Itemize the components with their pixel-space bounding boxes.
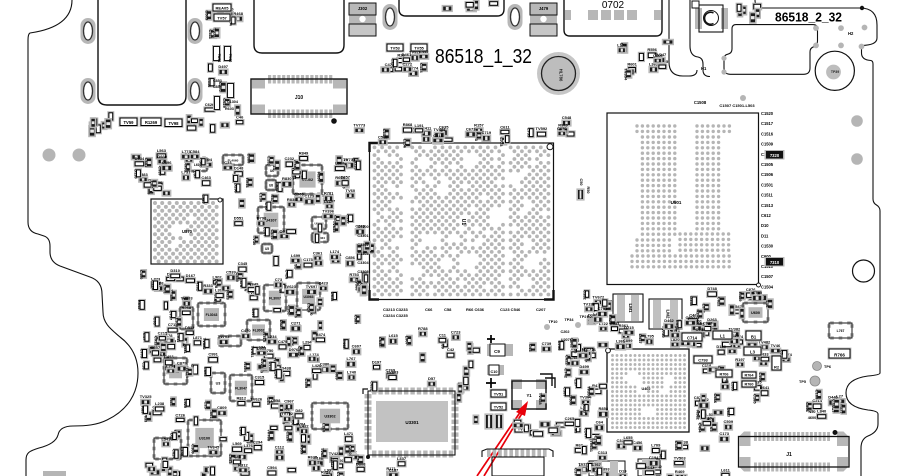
svg-text:D461: D461 — [402, 52, 412, 57]
svg-text:R489: R489 — [738, 292, 743, 302]
svg-text:C309: C309 — [191, 444, 196, 454]
svg-text:C3213 C3233: C3213 C3233 — [383, 307, 408, 312]
svg-text:TV882: TV882 — [202, 338, 207, 351]
svg-text:C587: C587 — [353, 315, 358, 325]
svg-text:C66: C66 — [425, 307, 433, 312]
svg-text:C493: C493 — [164, 354, 174, 359]
svg-text:D58: D58 — [170, 433, 175, 441]
svg-text:D500: D500 — [568, 395, 573, 405]
svg-text:C315: C315 — [255, 375, 265, 380]
svg-text:C17: C17 — [142, 333, 147, 341]
svg-text:R849: R849 — [299, 151, 309, 156]
svg-text:L471: L471 — [344, 431, 354, 436]
svg-text:C181: C181 — [832, 399, 837, 409]
svg-text:L420: L420 — [312, 363, 322, 368]
svg-text:TV52: TV52 — [494, 404, 504, 409]
svg-text:TV46: TV46 — [771, 343, 781, 348]
svg-text:C87: C87 — [150, 181, 155, 189]
svg-text:U3: U3 — [216, 382, 221, 386]
svg-text:TV53: TV53 — [390, 45, 400, 50]
svg-text:U3100: U3100 — [199, 437, 210, 441]
svg-text:C187: C187 — [262, 227, 267, 237]
svg-text:TV623: TV623 — [284, 284, 297, 289]
svg-text:R757: R757 — [321, 470, 331, 475]
svg-text:R127: R127 — [582, 404, 587, 414]
svg-text:REA05: REA05 — [216, 5, 230, 10]
svg-text:L569: L569 — [233, 441, 243, 446]
svg-text:C895: C895 — [203, 367, 208, 377]
svg-text:B1: B1 — [751, 334, 757, 339]
svg-text:R766: R766 — [834, 352, 845, 357]
svg-text:C188: C188 — [814, 390, 819, 400]
svg-text:C874: C874 — [275, 182, 280, 192]
svg-text:C215: C215 — [158, 331, 168, 336]
svg-text:R66 C636: R66 C636 — [466, 307, 485, 312]
svg-text:C93: C93 — [152, 317, 157, 325]
svg-text:R830: R830 — [282, 176, 292, 181]
svg-text:C202: C202 — [560, 330, 569, 334]
svg-text:C822: C822 — [717, 297, 722, 307]
svg-text:C622: C622 — [565, 355, 570, 365]
svg-text:R142: R142 — [645, 465, 655, 470]
svg-text:C399: C399 — [304, 379, 309, 389]
svg-text:C1520: C1520 — [761, 111, 774, 116]
svg-text:TV209: TV209 — [586, 386, 591, 399]
svg-text:C265: C265 — [565, 416, 575, 421]
svg-text:C1513: C1513 — [761, 203, 774, 208]
svg-text:7320: 7320 — [770, 153, 780, 158]
svg-text:C333: C333 — [610, 321, 620, 326]
svg-text:L738: L738 — [180, 447, 185, 457]
svg-text:C445: C445 — [419, 49, 429, 54]
svg-text:C607: C607 — [352, 344, 362, 349]
svg-text:C1507: C1507 — [761, 274, 774, 279]
svg-text:86518_1_32: 86518_1_32 — [435, 46, 532, 68]
svg-text:D715: D715 — [624, 325, 634, 330]
svg-text:R603: R603 — [225, 107, 234, 111]
svg-text:D82: D82 — [295, 408, 303, 413]
svg-text:C470: C470 — [241, 328, 251, 333]
svg-text:D930: D930 — [157, 154, 167, 159]
svg-text:C173: C173 — [303, 257, 313, 262]
svg-text:L37: L37 — [574, 379, 579, 387]
svg-text:TV40: TV40 — [228, 54, 232, 63]
svg-text:C112: C112 — [275, 444, 285, 449]
svg-text:L422: L422 — [300, 423, 310, 428]
svg-text:C376: C376 — [239, 278, 244, 288]
svg-text:L536: L536 — [335, 161, 345, 166]
svg-text:L16: L16 — [765, 300, 770, 308]
svg-text:D197: D197 — [372, 359, 382, 364]
svg-text:C879: C879 — [177, 361, 187, 366]
svg-text:C3303: C3303 — [357, 252, 368, 256]
svg-text:D818: D818 — [330, 292, 335, 302]
svg-text:C714: C714 — [687, 335, 698, 340]
svg-text:D798: D798 — [257, 216, 267, 221]
svg-text:C795: C795 — [598, 306, 608, 311]
svg-text:C361: C361 — [313, 251, 323, 256]
svg-text:R788: R788 — [418, 326, 428, 331]
svg-text:C856: C856 — [345, 255, 355, 260]
svg-text:R834: R834 — [287, 197, 297, 202]
svg-text:D110: D110 — [134, 169, 139, 179]
svg-text:C345: C345 — [238, 261, 248, 266]
svg-text:C509: C509 — [724, 419, 734, 424]
svg-text:C3300: C3300 — [357, 225, 368, 229]
svg-text:L615: L615 — [389, 333, 399, 338]
svg-text:C187: C187 — [389, 467, 399, 472]
svg-text:D462: D462 — [664, 318, 674, 323]
svg-text:C539: C539 — [226, 270, 236, 275]
svg-text:D438: D438 — [281, 365, 291, 370]
svg-text:R715: R715 — [262, 332, 267, 342]
svg-text:TP39: TP39 — [831, 70, 839, 74]
svg-text:TV423: TV423 — [329, 451, 342, 456]
svg-text:D551: D551 — [234, 216, 244, 221]
svg-text:R845: R845 — [137, 300, 142, 310]
svg-text:C594: C594 — [267, 465, 277, 470]
svg-text:R733: R733 — [354, 160, 359, 170]
svg-text:C9: C9 — [494, 349, 500, 354]
svg-text:C767: C767 — [591, 462, 601, 467]
svg-text:L907: L907 — [405, 336, 410, 346]
svg-text:R781: R781 — [324, 190, 334, 195]
svg-text:TV773: TV773 — [353, 123, 366, 128]
svg-text:R868: R868 — [403, 122, 413, 127]
svg-text:R54: R54 — [169, 398, 174, 406]
svg-text:C207: C207 — [390, 59, 395, 69]
svg-text:D808: D808 — [356, 461, 366, 466]
svg-text:C726: C726 — [175, 412, 185, 417]
svg-text:L767: L767 — [837, 329, 845, 333]
svg-text:R197: R197 — [735, 357, 745, 362]
svg-text:L361: L361 — [616, 339, 626, 344]
svg-text:L191: L191 — [414, 123, 424, 128]
svg-text:D324: D324 — [279, 320, 284, 330]
svg-text:R959: R959 — [299, 445, 304, 455]
svg-text:C372: C372 — [675, 320, 680, 330]
svg-text:C1517: C1517 — [761, 121, 774, 126]
svg-text:R141: R141 — [274, 369, 279, 379]
svg-text:L130: L130 — [259, 193, 264, 203]
svg-text:C232: C232 — [285, 156, 295, 161]
svg-text:C152: C152 — [582, 290, 587, 300]
svg-text:TV60: TV60 — [346, 188, 356, 193]
svg-text:C1516: C1516 — [761, 131, 774, 136]
svg-text:C1507 C1501-L503: C1507 C1501-L503 — [719, 103, 755, 108]
svg-text:R858: R858 — [599, 406, 609, 411]
svg-text:C809: C809 — [217, 405, 227, 410]
svg-text:C490: C490 — [139, 270, 144, 280]
svg-text:D662: D662 — [570, 338, 575, 348]
svg-text:C423: C423 — [318, 281, 328, 286]
svg-text:C1304: C1304 — [227, 100, 239, 104]
svg-text:L238: L238 — [155, 401, 165, 406]
svg-text:R946: R946 — [245, 178, 250, 188]
svg-text:R760: R760 — [744, 382, 753, 386]
svg-text:D310: D310 — [170, 268, 180, 273]
svg-text:C456: C456 — [633, 440, 643, 445]
svg-text:C612: C612 — [761, 213, 772, 218]
svg-text:H1: H1 — [701, 66, 707, 71]
svg-text:J302: J302 — [358, 6, 368, 11]
svg-text:R469: R469 — [675, 469, 685, 474]
svg-text:C10: C10 — [491, 370, 498, 374]
svg-text:R1269: R1269 — [145, 120, 158, 125]
svg-text:C853: C853 — [213, 79, 222, 83]
svg-text:TV30: TV30 — [252, 236, 257, 246]
svg-text:C542: C542 — [297, 346, 302, 356]
svg-text:D167: D167 — [186, 273, 196, 278]
svg-text:R601: R601 — [627, 62, 637, 67]
svg-text:L108: L108 — [174, 318, 179, 328]
svg-text:C116: C116 — [207, 78, 212, 88]
svg-text:L437: L437 — [397, 456, 407, 461]
svg-text:D10: D10 — [761, 223, 769, 228]
svg-text:C185: C185 — [753, 394, 758, 404]
svg-text:C426: C426 — [285, 270, 290, 280]
svg-text:C681: C681 — [144, 158, 149, 168]
svg-text:L524: L524 — [307, 303, 312, 313]
svg-text:C252: C252 — [287, 305, 292, 315]
svg-text:TV59: TV59 — [123, 120, 134, 125]
svg-text:C728: C728 — [260, 359, 265, 369]
svg-text:D532: D532 — [185, 325, 195, 330]
svg-text:C73: C73 — [275, 277, 283, 282]
svg-text:C463: C463 — [201, 175, 211, 180]
svg-text:U600: U600 — [751, 311, 760, 315]
svg-text:FL3047: FL3047 — [235, 387, 247, 391]
svg-text:C557: C557 — [151, 345, 161, 350]
svg-text:C448: C448 — [595, 467, 600, 476]
svg-text:C1506: C1506 — [761, 172, 774, 177]
svg-text:C11: C11 — [439, 332, 447, 337]
svg-text:C977: C977 — [251, 308, 256, 318]
svg-text:TV684: TV684 — [320, 448, 325, 461]
svg-text:C611: C611 — [500, 124, 510, 129]
svg-text:U501: U501 — [671, 200, 682, 205]
svg-text:C723: C723 — [451, 329, 461, 334]
svg-text:R424: R424 — [185, 368, 190, 378]
svg-text:L298: L298 — [166, 363, 176, 368]
svg-text:TV441: TV441 — [250, 346, 255, 359]
svg-text:J479: J479 — [539, 6, 549, 11]
svg-text:L920: L920 — [183, 399, 188, 409]
svg-text:C103: C103 — [674, 441, 679, 451]
svg-text:H2: H2 — [848, 31, 854, 36]
svg-text:R568: R568 — [182, 305, 192, 310]
svg-text:L840: L840 — [817, 409, 827, 414]
svg-text:C25: C25 — [204, 402, 209, 410]
svg-text:D19: D19 — [619, 469, 627, 474]
svg-text:TV792: TV792 — [281, 411, 294, 416]
svg-text:C3305: C3305 — [357, 270, 368, 274]
svg-text:D380: D380 — [246, 154, 251, 164]
svg-text:D748: D748 — [707, 286, 717, 291]
svg-text:L655: L655 — [623, 435, 633, 440]
svg-text:C865: C865 — [653, 53, 663, 58]
svg-text:C134: C134 — [419, 63, 424, 73]
svg-text:L795: L795 — [645, 334, 655, 339]
svg-text:C1508: C1508 — [694, 100, 707, 105]
svg-text:C271: C271 — [291, 321, 301, 326]
svg-text:R2: R2 — [774, 364, 780, 369]
svg-text:TV383: TV383 — [181, 296, 194, 301]
svg-text:R69: R69 — [140, 406, 145, 414]
svg-text:TV345: TV345 — [207, 445, 220, 450]
svg-text:TV626: TV626 — [250, 396, 263, 401]
svg-text:C757: C757 — [169, 311, 174, 321]
svg-text:L356: L356 — [403, 139, 408, 149]
svg-text:L234: L234 — [267, 334, 277, 339]
svg-text:C26: C26 — [142, 362, 147, 370]
svg-text:C790: C790 — [557, 341, 562, 351]
svg-text:L933: L933 — [239, 427, 244, 437]
svg-text:C173: C173 — [719, 431, 729, 436]
svg-text:C194: C194 — [649, 455, 659, 460]
svg-text:C479: C479 — [278, 339, 288, 344]
svg-text:C282: C282 — [336, 472, 341, 476]
svg-text:D417: D417 — [638, 334, 643, 344]
svg-text:C324: C324 — [150, 280, 155, 290]
svg-text:C34: C34 — [224, 160, 232, 165]
svg-text:TV325: TV325 — [140, 394, 153, 399]
svg-text:D934: D934 — [135, 156, 145, 161]
svg-text:C58: C58 — [444, 307, 452, 312]
svg-text:N50: N50 — [809, 410, 816, 414]
svg-text:C280: C280 — [348, 445, 353, 455]
svg-text:C97: C97 — [193, 171, 198, 179]
svg-text:TP6: TP6 — [824, 365, 831, 369]
svg-text:L535: L535 — [730, 382, 735, 392]
svg-text:U402: U402 — [641, 387, 650, 391]
svg-text:C558: C558 — [271, 398, 281, 403]
svg-text:C123: C123 — [305, 194, 315, 199]
svg-text:C3301: C3301 — [357, 234, 368, 238]
svg-text:C824: C824 — [172, 449, 177, 459]
svg-text:C850: C850 — [213, 85, 222, 89]
svg-text:TV484: TV484 — [434, 127, 447, 132]
svg-text:C719: C719 — [482, 130, 492, 135]
svg-text:TP34: TP34 — [564, 318, 574, 322]
svg-text:D57: D57 — [428, 376, 436, 381]
svg-text:C548: C548 — [562, 115, 572, 120]
svg-text:C867: C867 — [201, 194, 206, 204]
svg-text:D11: D11 — [761, 233, 769, 238]
svg-text:R557: R557 — [316, 172, 321, 182]
svg-text:C638: C638 — [378, 337, 383, 347]
svg-text:C23: C23 — [233, 454, 241, 459]
svg-text:TA51: TA51 — [217, 54, 221, 63]
svg-text:C670: C670 — [557, 126, 567, 131]
svg-text:L723: L723 — [499, 137, 504, 147]
svg-text:L172: L172 — [617, 42, 627, 47]
svg-text:FL3043: FL3043 — [206, 313, 218, 317]
svg-text:TV190: TV190 — [583, 302, 596, 307]
svg-text:R812: R812 — [237, 396, 247, 401]
svg-text:7310: 7310 — [770, 260, 780, 265]
svg-text:J1: J1 — [786, 452, 792, 458]
svg-text:R157: R157 — [474, 123, 484, 128]
svg-text:D505: D505 — [204, 11, 209, 21]
svg-text:TV683: TV683 — [387, 369, 400, 374]
svg-text:L709: L709 — [651, 443, 661, 448]
svg-text:TV354: TV354 — [623, 68, 628, 81]
svg-text:C666: C666 — [713, 394, 718, 404]
svg-text:U870: U870 — [182, 229, 193, 234]
svg-text:U1: U1 — [460, 219, 466, 226]
svg-text:C207: C207 — [536, 307, 546, 312]
svg-text:C294: C294 — [253, 440, 263, 445]
svg-text:R923: R923 — [225, 290, 230, 300]
svg-text:TV51: TV51 — [494, 391, 504, 396]
svg-text:C1511: C1511 — [761, 193, 774, 198]
svg-text:C967: C967 — [284, 399, 294, 404]
svg-text:L611: L611 — [721, 467, 731, 472]
svg-text:L153: L153 — [267, 156, 272, 166]
svg-text:C387: C387 — [563, 387, 568, 397]
svg-text:C1501: C1501 — [761, 182, 774, 187]
svg-text:R562: R562 — [696, 410, 701, 420]
svg-text:D180: D180 — [716, 344, 726, 349]
svg-text:C156: C156 — [586, 463, 591, 473]
svg-text:C632: C632 — [370, 381, 375, 391]
svg-text:FL3007: FL3007 — [269, 297, 281, 301]
svg-text:R706: R706 — [719, 372, 728, 376]
svg-text:TV702: TV702 — [218, 334, 231, 339]
svg-text:C742: C742 — [563, 368, 568, 378]
svg-text:L174: L174 — [330, 249, 340, 254]
svg-text:L699: L699 — [291, 253, 301, 258]
svg-text:L35: L35 — [722, 379, 730, 384]
svg-text:C775: C775 — [752, 290, 762, 295]
svg-text:D296: D296 — [234, 183, 239, 193]
svg-text:TV631: TV631 — [589, 440, 594, 453]
svg-text:L1: L1 — [720, 333, 726, 338]
svg-text:TV592: TV592 — [536, 126, 549, 131]
svg-text:TV207: TV207 — [324, 199, 337, 204]
svg-text:U3301: U3301 — [405, 420, 419, 425]
svg-text:R468: R468 — [233, 11, 243, 16]
svg-text:C1509: C1509 — [761, 142, 774, 147]
svg-text:C657: C657 — [340, 175, 350, 180]
svg-text:C123 C546: C123 C546 — [500, 307, 521, 312]
svg-text:C147: C147 — [583, 428, 588, 438]
svg-text:0702: 0702 — [602, 0, 625, 11]
svg-text:U3302: U3302 — [324, 415, 335, 419]
svg-text:TV697: TV697 — [306, 284, 319, 289]
svg-text:C794: C794 — [594, 436, 599, 446]
svg-text:L740: L740 — [347, 369, 357, 374]
svg-text:C512: C512 — [378, 134, 388, 139]
svg-text:R474: R474 — [316, 332, 326, 337]
svg-text:J10: J10 — [295, 95, 304, 101]
svg-text:R641: R641 — [760, 385, 770, 390]
svg-text:C991: C991 — [208, 352, 218, 357]
svg-text:L563: L563 — [157, 148, 167, 153]
svg-text:C1504: C1504 — [761, 284, 774, 289]
svg-text:TV98: TV98 — [168, 121, 179, 126]
svg-text:TP2: TP2 — [580, 315, 587, 319]
svg-text:L3: L3 — [750, 349, 756, 354]
svg-text:TP5: TP5 — [799, 380, 806, 384]
svg-text:C659: C659 — [257, 345, 267, 350]
svg-text:C1505: C1505 — [761, 162, 774, 167]
svg-text:U4107: U4107 — [265, 219, 276, 223]
svg-text:TP10: TP10 — [548, 320, 557, 324]
svg-text:C64: C64 — [596, 420, 604, 425]
svg-text:R764: R764 — [744, 373, 754, 377]
